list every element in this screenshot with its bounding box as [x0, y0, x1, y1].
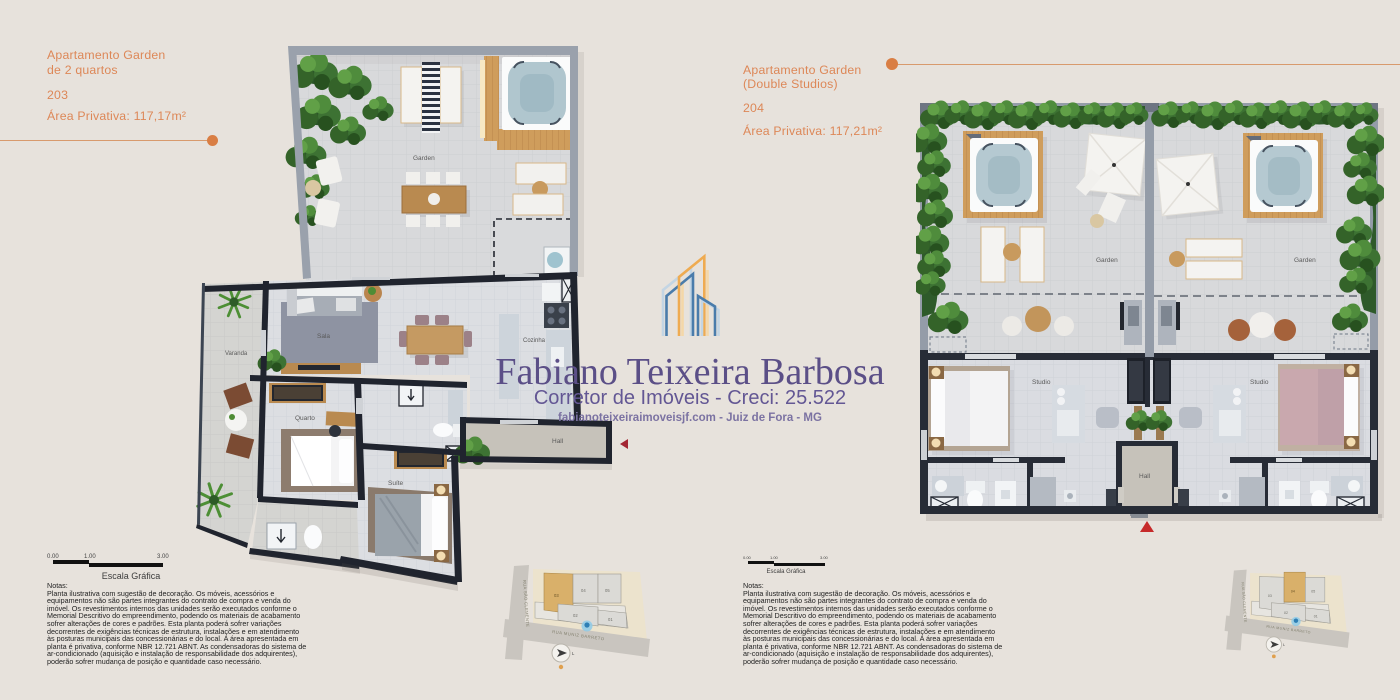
- svg-text:05: 05: [605, 588, 610, 593]
- svg-text:Garden: Garden: [413, 155, 435, 162]
- svg-text:Sala: Sala: [317, 333, 330, 340]
- svg-text:Hall: Hall: [1139, 473, 1151, 480]
- svg-text:03: 03: [554, 593, 559, 598]
- svg-text:3.00: 3.00: [820, 555, 829, 560]
- svg-text:01: 01: [1314, 614, 1318, 618]
- svg-text:1.00: 1.00: [770, 555, 779, 560]
- svg-text:Cozinha: Cozinha: [523, 338, 546, 344]
- svg-text:Quarto: Quarto: [295, 415, 315, 422]
- svg-text:Hall: Hall: [552, 438, 564, 445]
- svg-text:L: L: [572, 651, 575, 656]
- svg-text:02: 02: [1284, 611, 1288, 615]
- svg-text:0.00: 0.00: [743, 555, 752, 560]
- svg-text:1.00: 1.00: [84, 554, 96, 560]
- svg-text:Garden: Garden: [1294, 257, 1316, 264]
- svg-text:Varanda: Varanda: [225, 351, 248, 357]
- svg-text:05: 05: [1311, 590, 1315, 594]
- svg-text:04: 04: [581, 588, 586, 593]
- svg-text:Suíte: Suíte: [388, 480, 404, 487]
- svg-text:0.00: 0.00: [47, 554, 59, 560]
- svg-text:02: 02: [573, 613, 578, 618]
- svg-text:Studio: Studio: [1250, 379, 1269, 386]
- svg-text:3.00: 3.00: [157, 554, 169, 560]
- svg-text:L: L: [1283, 643, 1285, 647]
- svg-text:04: 04: [1291, 590, 1295, 594]
- svg-text:Escala Gráfica: Escala Gráfica: [766, 569, 806, 574]
- svg-text:03: 03: [1268, 594, 1272, 598]
- svg-text:Escala Gráfica: Escala Gráfica: [102, 571, 161, 581]
- svg-text:01: 01: [608, 617, 613, 622]
- svg-text:Garden: Garden: [1096, 257, 1118, 264]
